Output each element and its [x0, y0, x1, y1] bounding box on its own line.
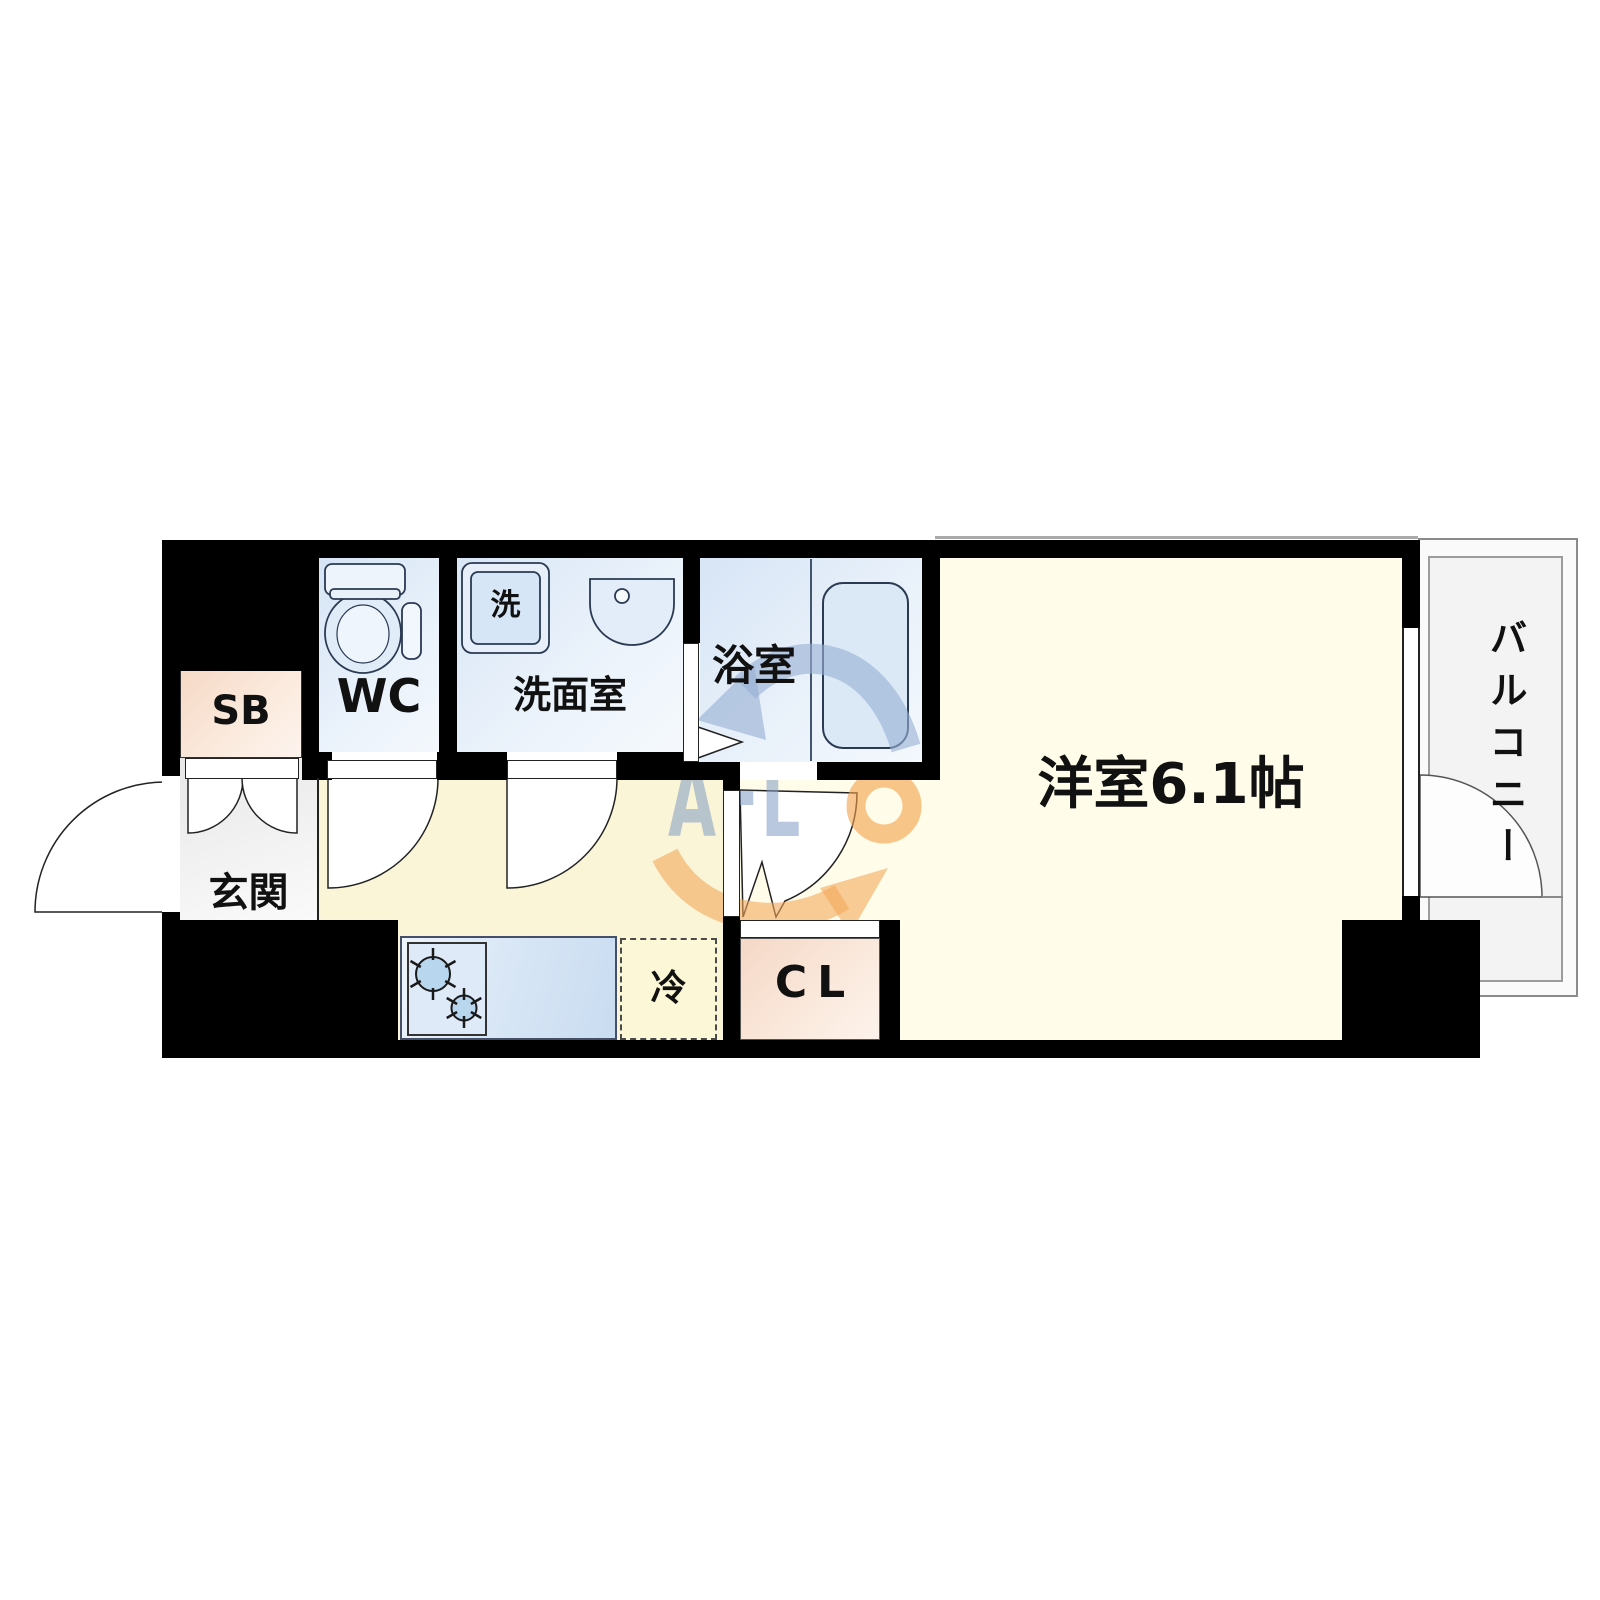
wall-sb-wc: [302, 558, 319, 780]
wall-block-bottomleft: [162, 920, 398, 1058]
wall-pillar-bottomright: [1342, 920, 1480, 1058]
wall-block-topleft: [180, 558, 302, 671]
wall-band-3: [617, 752, 683, 780]
wall-wc-washroom: [439, 558, 457, 760]
shoebox-door-left: [188, 778, 243, 833]
shoebox-door-right: [242, 778, 297, 833]
wall-top: [162, 540, 1420, 558]
shoebox-label: SB: [180, 690, 302, 732]
toilet-icon: [325, 564, 421, 673]
wall-right-stub: [1402, 896, 1420, 922]
room-door-gap: [740, 762, 817, 780]
refrigerator-label: 冷: [620, 970, 717, 1008]
washroom-door-track: [507, 760, 617, 779]
balcony-window: [1402, 628, 1420, 896]
entrance-step-line: [317, 778, 319, 920]
washroom-door-swing: [507, 778, 617, 888]
wall-cl-right: [880, 920, 900, 1058]
wall-right-upper: [1402, 540, 1420, 628]
entrance-door-swing: [35, 782, 165, 912]
wall-bottom: [398, 1040, 1342, 1058]
floor-plan-canvas: AFL WC 洗面室 洗 浴室 SB 玄関 洋室6.1帖 CL 冷 バルコニー: [0, 0, 1600, 1600]
wall-left-upper: [162, 558, 180, 778]
washroom-label: 洗面室: [457, 676, 683, 716]
entrance-opening: [162, 776, 180, 912]
western-room-label: 洋室6.1帖: [940, 756, 1402, 815]
wall-corridor-stub: [723, 762, 740, 792]
bathroom-door-strip: [683, 643, 699, 762]
wall-washroom-bath: [683, 558, 700, 643]
wall-cl-left: [723, 917, 740, 1058]
room-door-strip: [723, 790, 740, 917]
stove-icon: [408, 943, 486, 1035]
washer-mark-label: 洗: [462, 590, 549, 622]
toilet-door-swing: [328, 778, 438, 888]
closet-door-track: [740, 920, 880, 938]
balcony-label: バルコニー: [1472, 618, 1524, 1038]
toilet-door-track: [327, 760, 437, 779]
entrance-label: 玄関: [180, 872, 317, 914]
toilet-label: WC: [319, 672, 439, 720]
shoebox-door-track: [185, 758, 299, 779]
watermark-letter-o: [856, 778, 912, 834]
basin-icon: [590, 579, 674, 645]
wall-bath-right: [922, 558, 940, 780]
wall-band-2: [437, 752, 507, 780]
bathroom-label: 浴室: [700, 644, 808, 688]
closet-label: CL: [740, 960, 880, 1006]
